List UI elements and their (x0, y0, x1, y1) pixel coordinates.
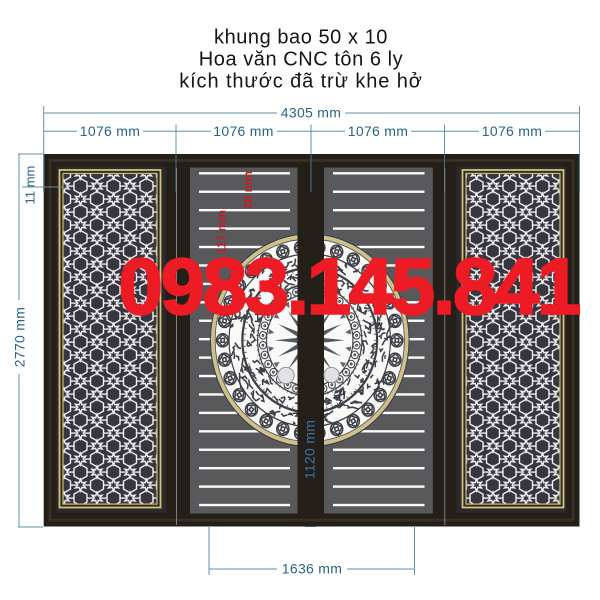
svg-text:1076 mm: 1076 mm (348, 123, 408, 139)
svg-text:0983.145.841: 0983.145.841 (119, 242, 579, 331)
svg-text:1076 mm: 1076 mm (80, 123, 140, 139)
svg-text:4305 mm: 4305 mm (281, 105, 341, 121)
svg-text:1076 mm: 1076 mm (213, 123, 273, 139)
svg-text:2770 mm: 2770 mm (12, 307, 28, 367)
svg-text:11 mm: 11 mm (23, 166, 38, 205)
svg-text:1636 mm: 1636 mm (282, 561, 342, 577)
svg-text:28 mm: 28 mm (241, 171, 255, 209)
svg-text:Hoa văn CNC tôn 6 ly: Hoa văn CNC tôn 6 ly (199, 49, 403, 71)
svg-text:khung bao 50 x 10: khung bao 50 x 10 (214, 27, 388, 49)
svg-text:kích thước đã trừ khe hở: kích thước đã trừ khe hở (179, 71, 423, 93)
svg-text:1076 mm: 1076 mm (482, 123, 542, 139)
svg-text:1120 mm: 1120 mm (302, 420, 318, 479)
